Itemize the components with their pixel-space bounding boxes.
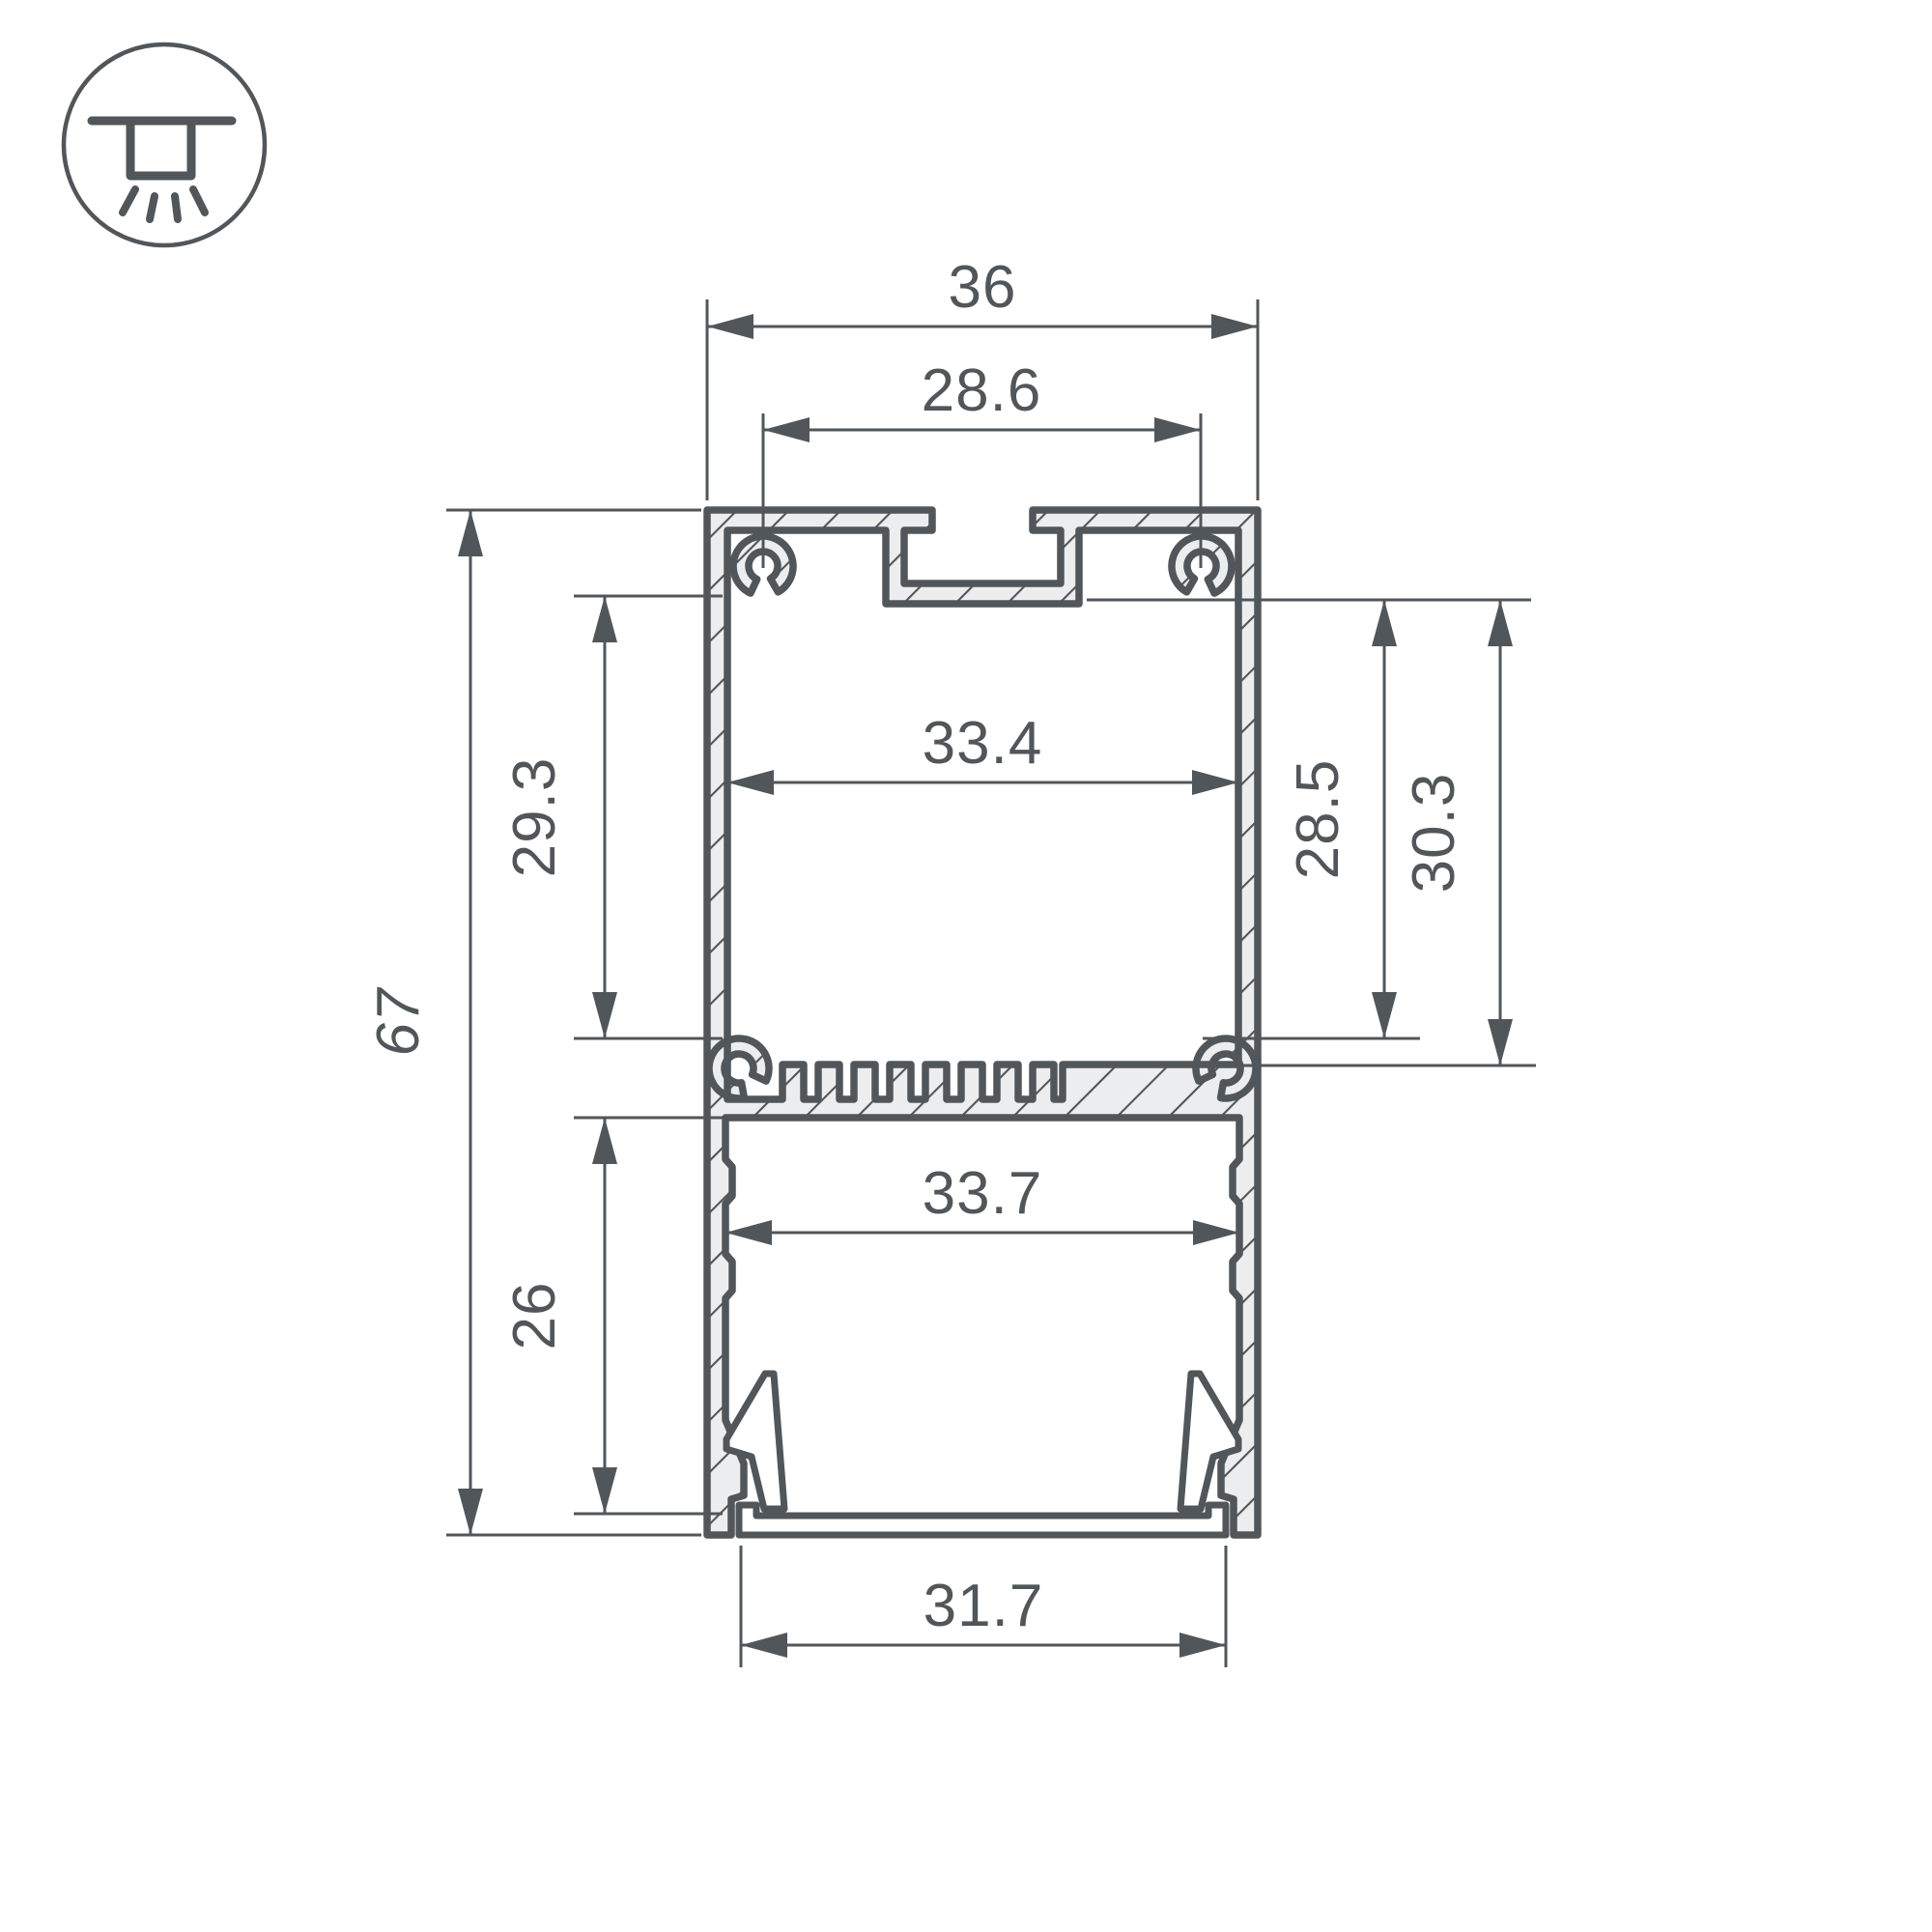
dimension-lower-chamber-height <box>592 1118 617 1514</box>
profile-outlines <box>707 510 1258 1535</box>
extension-lines <box>446 299 1536 1667</box>
dimension-right-height-a <box>1372 600 1397 1038</box>
cover-spring-clips <box>726 1374 1238 1509</box>
dimension-total-height <box>458 510 483 1535</box>
screw-boss-outlines <box>709 536 1256 1098</box>
profile-technical-drawing: 36 28.6 33.4 33.7 31.7 67 29.3 26 28.5 3… <box>0 0 1932 1932</box>
label-lower-inner-width: 33.7 <box>923 1160 1043 1227</box>
label-lower-chamber-height: 26 <box>501 1282 568 1350</box>
label-right-height-a: 28.5 <box>1285 759 1351 880</box>
profile-cross-section <box>676 478 1294 1570</box>
label-total-height: 67 <box>365 986 432 1056</box>
dimensions <box>446 299 1536 1667</box>
label-upper-chamber-height: 29.3 <box>501 757 568 878</box>
icon-circle <box>64 44 265 245</box>
diffuser-cover <box>739 1505 1226 1535</box>
icon-light-rays <box>123 189 205 219</box>
drawing-page: 36 28.6 33.4 33.7 31.7 67 29.3 26 28.5 3… <box>0 0 1932 1932</box>
label-outer-width: 36 <box>949 254 1017 321</box>
icon-fixture-box <box>130 121 191 176</box>
dimension-labels: 36 28.6 33.4 33.7 31.7 67 29.3 26 28.5 3… <box>365 254 1467 1639</box>
label-right-height-b: 30.3 <box>1401 773 1467 894</box>
dimension-upper-chamber-height <box>592 596 617 1038</box>
profile-shell <box>707 510 1258 1535</box>
label-upper-inner-width: 33.4 <box>923 710 1043 777</box>
screw-bosses-fill <box>709 536 1256 1098</box>
dimension-right-height-b <box>1488 600 1513 1065</box>
label-diffuser-width: 31.7 <box>923 1573 1044 1639</box>
label-slot-spacing: 28.6 <box>922 357 1042 424</box>
surface-ceiling-light-icon <box>64 44 265 245</box>
